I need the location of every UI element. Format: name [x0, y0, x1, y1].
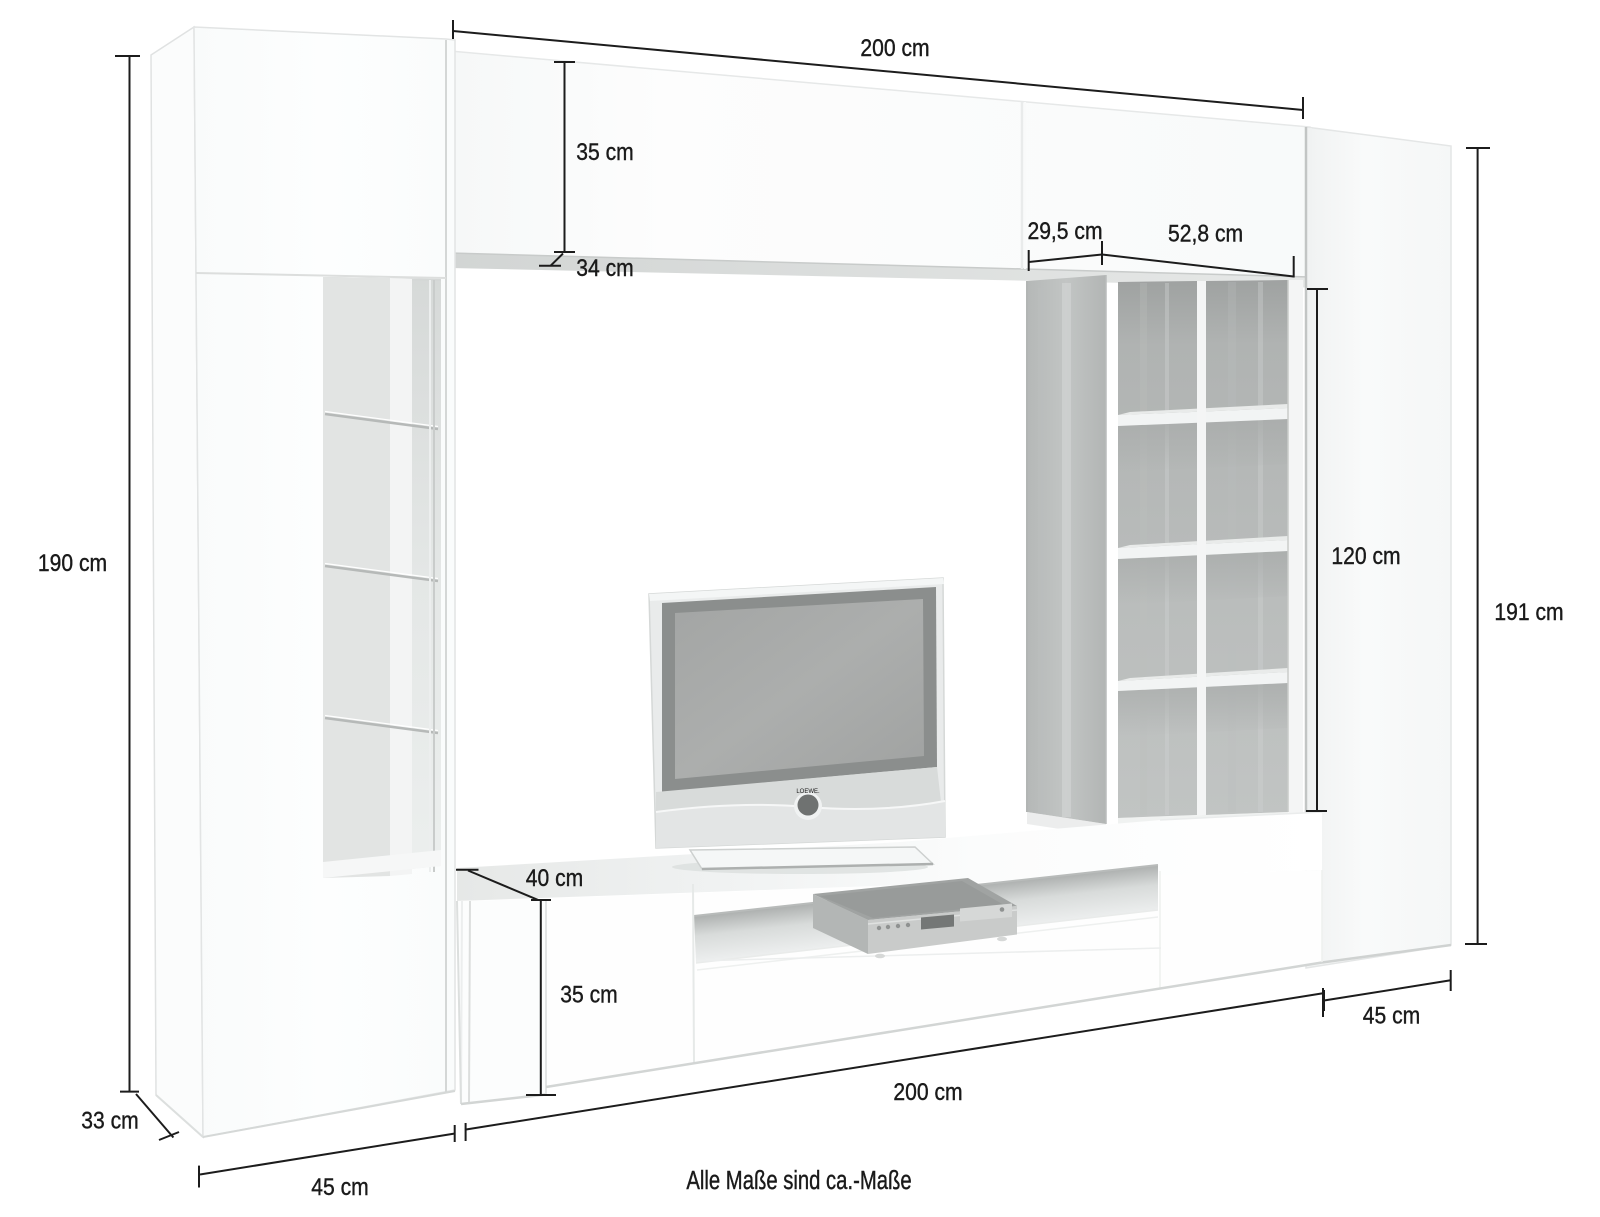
svg-text:200 cm: 200 cm — [860, 35, 929, 62]
svg-text:52,8 cm: 52,8 cm — [1168, 220, 1243, 247]
svg-text:190 cm: 190 cm — [38, 550, 107, 577]
svg-text:200 cm: 200 cm — [893, 1079, 962, 1106]
svg-text:35 cm: 35 cm — [576, 139, 633, 166]
svg-text:35 cm: 35 cm — [560, 981, 617, 1008]
svg-text:LOEWE.: LOEWE. — [796, 789, 820, 795]
svg-text:40 cm: 40 cm — [526, 865, 583, 892]
svg-text:120 cm: 120 cm — [1331, 543, 1400, 570]
svg-text:45 cm: 45 cm — [1363, 1002, 1420, 1029]
svg-text:33 cm: 33 cm — [81, 1107, 138, 1134]
svg-text:Alle Maße sind ca.-Maße: Alle Maße sind ca.-Maße — [686, 1166, 911, 1195]
svg-text:29,5 cm: 29,5 cm — [1027, 218, 1102, 245]
svg-text:34 cm: 34 cm — [576, 255, 633, 282]
svg-text:45 cm: 45 cm — [311, 1174, 368, 1201]
svg-text:191 cm: 191 cm — [1494, 599, 1563, 626]
